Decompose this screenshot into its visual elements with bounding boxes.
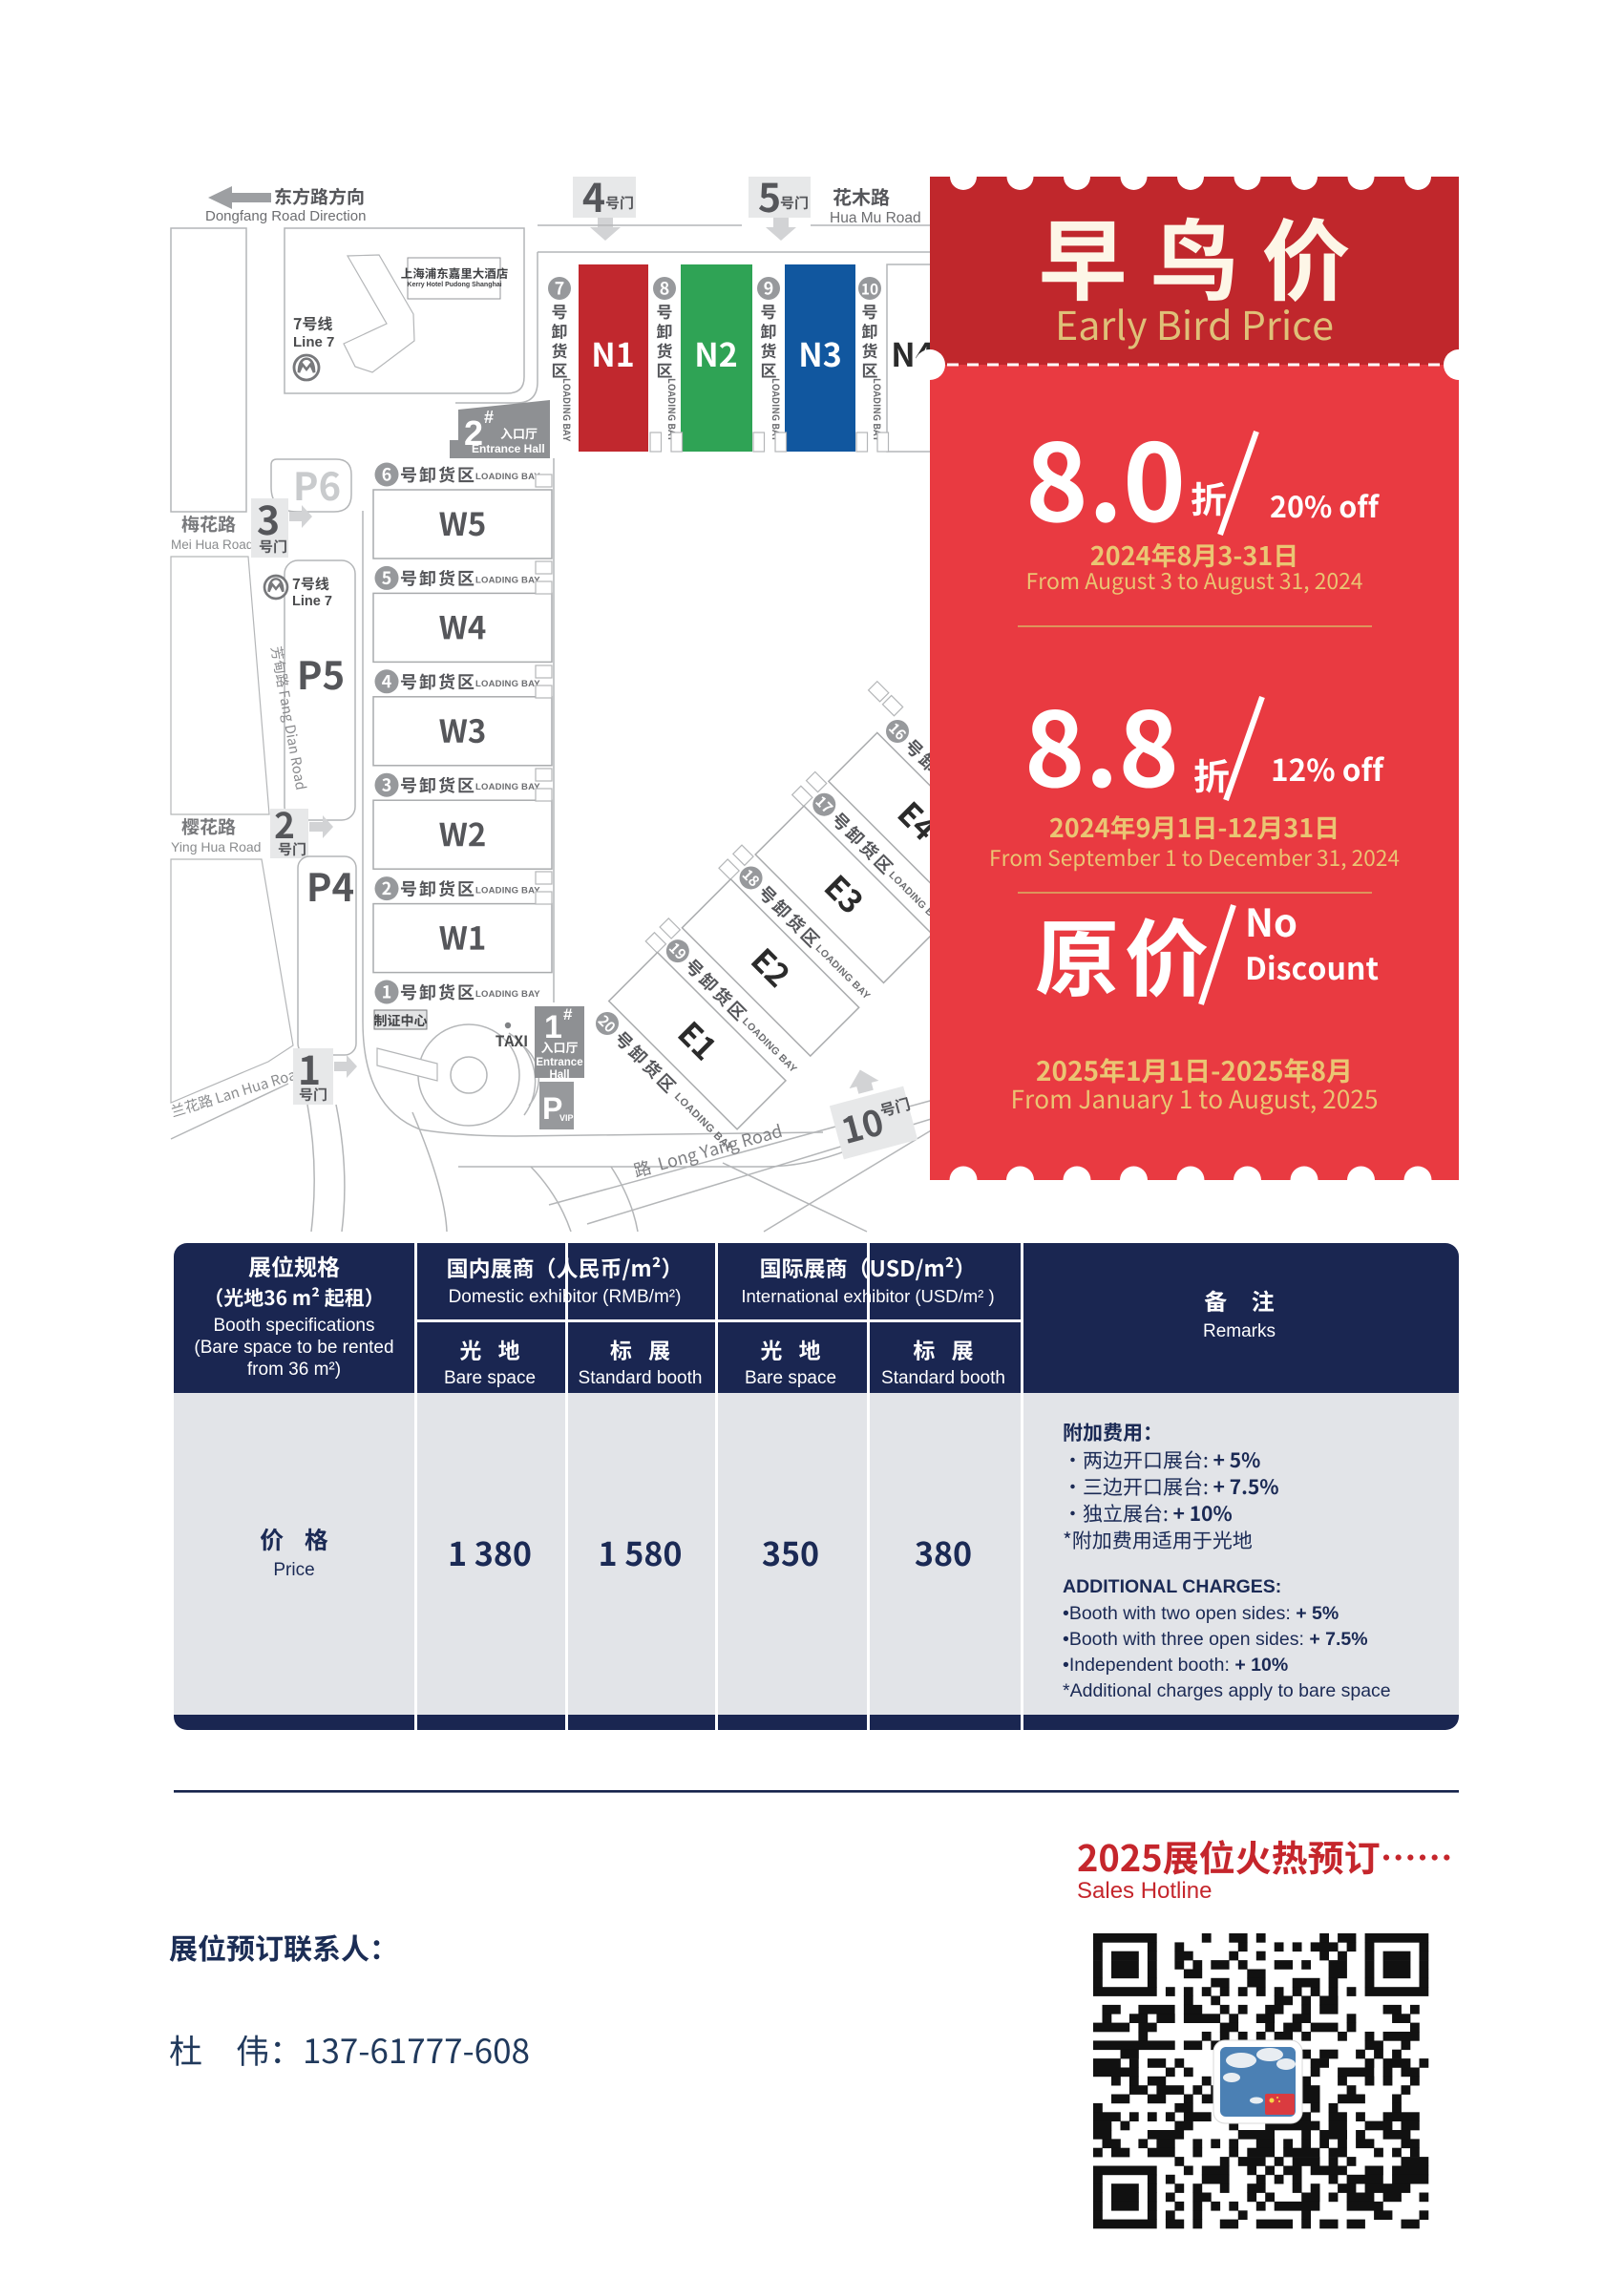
svg-text:LOADING BAY: LOADING BAY — [475, 679, 540, 689]
svg-text:from 36 m²): from 36 m²) — [247, 1360, 341, 1380]
svg-text:Booth specifications: Booth specifications — [214, 1316, 375, 1336]
svg-text:VIP: VIP — [559, 1113, 574, 1123]
svg-text:Mei Hua Road: Mei Hua Road — [171, 538, 253, 552]
svg-text:Hua Mu Road: Hua Mu Road — [830, 210, 921, 226]
svg-text:Bare space: Bare space — [745, 1368, 836, 1388]
svg-text:Domestic exhibitor (RMB/m²): Domestic exhibitor (RMB/m²) — [449, 1287, 682, 1307]
svg-text:(Bare space to be rented: (Bare space to be rented — [194, 1338, 393, 1358]
svg-text:Remarks: Remarks — [1203, 1321, 1276, 1341]
svg-text:LOADING BAY: LOADING BAY — [475, 886, 540, 896]
svg-text:Sales Hotline: Sales Hotline — [1077, 1878, 1212, 1904]
svg-text:Entrance: Entrance — [536, 1057, 582, 1068]
svg-text:*Additional charges apply to b: *Additional charges apply to bare space — [1063, 1680, 1391, 1701]
svg-text:Ying Hua Road: Ying Hua Road — [171, 839, 261, 854]
svg-text:Entrance Hall: Entrance Hall — [472, 442, 545, 455]
svg-text:LOADING BAY: LOADING BAY — [475, 472, 540, 482]
svg-text:LOADING BAY: LOADING BAY — [475, 575, 540, 585]
svg-text:Kerry Hotel Pudong Shanghai: Kerry Hotel Pudong Shanghai — [407, 282, 501, 288]
svg-text:•Independent booth: + 10%: •Independent booth: + 10% — [1063, 1655, 1288, 1676]
svg-text:#: # — [563, 1005, 573, 1023]
svg-text:Standard booth: Standard booth — [881, 1368, 1005, 1388]
svg-text:Hall: Hall — [549, 1069, 569, 1081]
svg-text:Line 7: Line 7 — [292, 594, 332, 609]
svg-text:International exhibitor (USD/m: International exhibitor (USD/m² ) — [741, 1286, 994, 1306]
svg-text:LOADING BAY: LOADING BAY — [475, 782, 540, 792]
svg-text:•Booth with three open sides:: •Booth with three open sides: + 7.5% — [1063, 1629, 1368, 1650]
svg-text:1: 1 — [544, 1009, 562, 1045]
svg-text:#: # — [484, 408, 494, 427]
svg-text:Bare space: Bare space — [444, 1368, 536, 1388]
svg-text:Standard booth: Standard booth — [579, 1368, 703, 1388]
svg-text:Line 7: Line 7 — [293, 334, 334, 350]
svg-text:Dongfang Road Direction: Dongfang Road Direction — [205, 208, 366, 224]
svg-text:ADDITIONAL CHARGES:: ADDITIONAL CHARGES: — [1063, 1576, 1281, 1597]
svg-text:LOADING BAY: LOADING BAY — [475, 989, 540, 1000]
svg-text:•Booth with two open sides: +: •Booth with two open sides: + 5% — [1063, 1603, 1339, 1624]
svg-text:Price: Price — [273, 1560, 314, 1580]
